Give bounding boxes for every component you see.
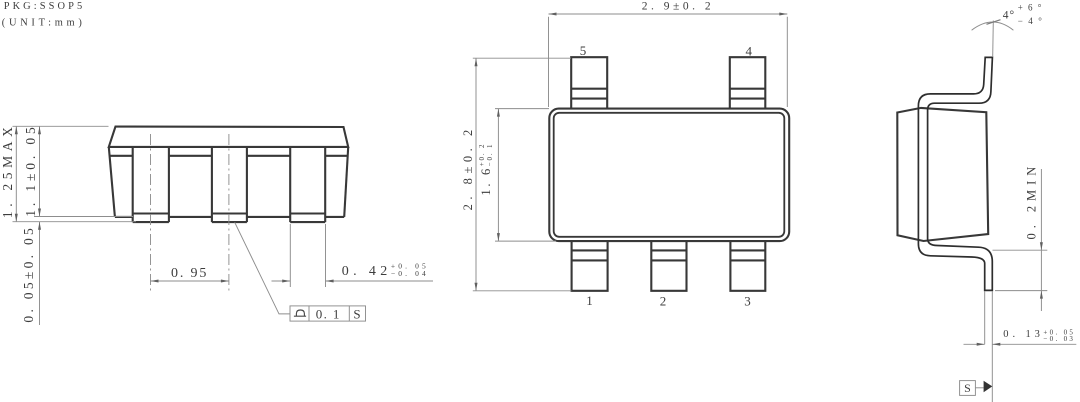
svg-text:+0. 05: +0. 05 [391, 262, 426, 271]
svg-text:0. 13: 0. 13 [1003, 329, 1040, 340]
svg-text:1. 25MAX: 1. 25MAX [0, 127, 15, 218]
svg-text:S: S [964, 381, 971, 395]
svg-text:5: 5 [580, 43, 587, 58]
svg-text:−0. 04: −0. 04 [391, 269, 426, 278]
svg-text:0. 1: 0. 1 [316, 306, 340, 321]
svg-text:−0. 1: −0. 1 [486, 144, 494, 166]
svg-text:−0. 03: −0. 03 [1043, 335, 1073, 343]
svg-text:+6°: +6° [1018, 2, 1042, 12]
svg-text:PKG:SSOP5: PKG:SSOP5 [4, 1, 83, 12]
svg-text:(UNIT:mm): (UNIT:mm) [2, 18, 82, 29]
svg-text:3: 3 [744, 293, 751, 308]
svg-text:0. 2MIN: 0. 2MIN [1025, 167, 1039, 240]
svg-text:−4°: −4° [1018, 16, 1042, 26]
svg-text:S: S [353, 306, 360, 321]
svg-text:2. 9±0. 2: 2. 9±0. 2 [642, 0, 711, 12]
svg-text:1: 1 [586, 293, 593, 308]
svg-text:0. 42: 0. 42 [342, 264, 387, 279]
svg-text:4°: 4° [1003, 10, 1015, 22]
svg-text:0. 95: 0. 95 [171, 266, 206, 281]
svg-text:1. 6: 1. 6 [479, 169, 493, 196]
svg-text:4: 4 [745, 43, 752, 58]
svg-text:2: 2 [660, 293, 667, 308]
svg-text:+0. 2: +0. 2 [478, 144, 486, 166]
svg-text:1. 1±0. 05: 1. 1±0. 05 [23, 127, 38, 217]
svg-text:0. 05±0. 05: 0. 05±0. 05 [21, 228, 36, 323]
svg-text:2. 8±0. 2: 2. 8±0. 2 [461, 130, 475, 211]
